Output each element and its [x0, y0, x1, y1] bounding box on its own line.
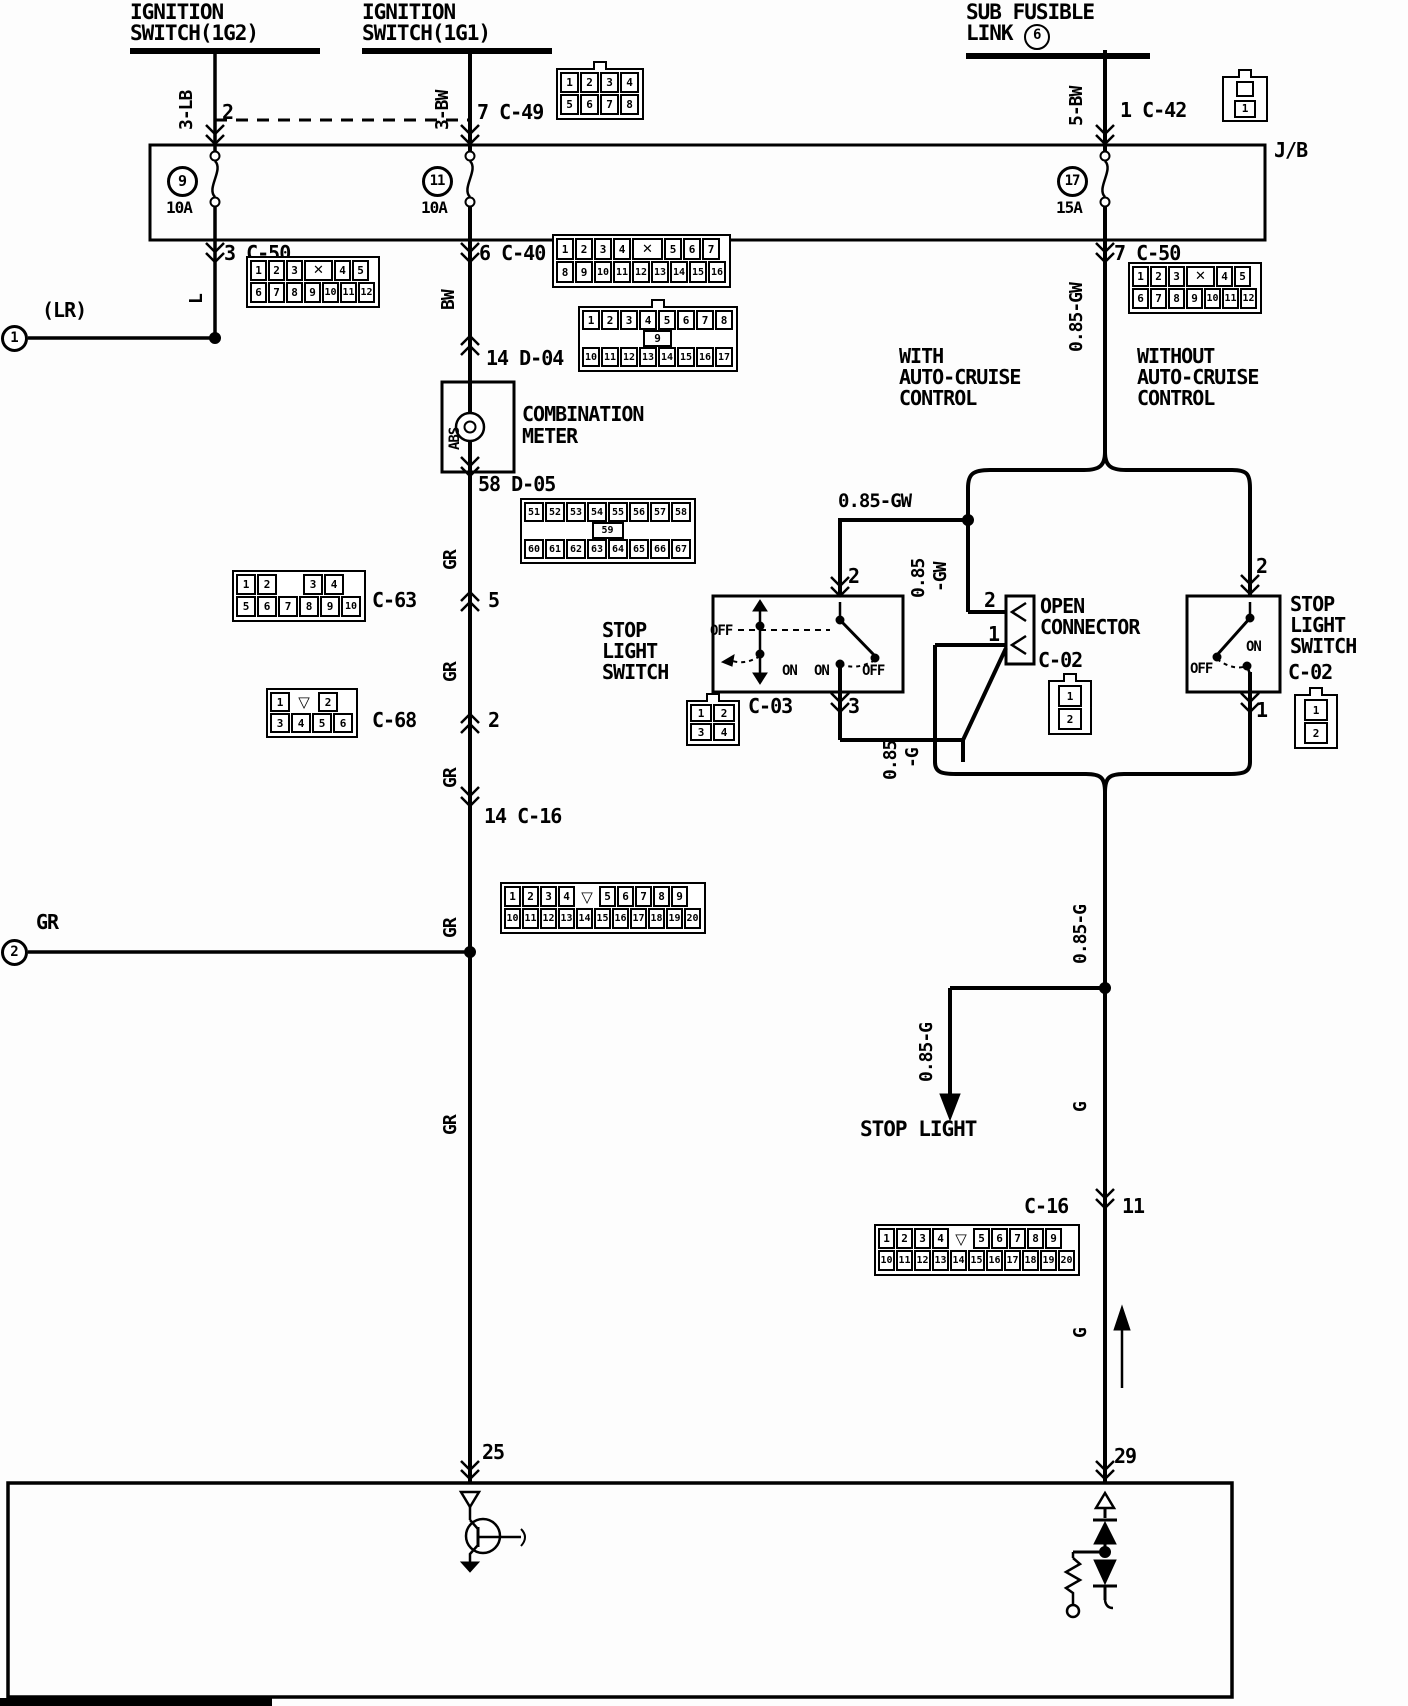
- connector-pin: 6: [683, 238, 701, 260]
- open-arrow-icon: [461, 1492, 479, 1507]
- label-15a: 15A: [1056, 200, 1082, 217]
- connector-pin: 2: [257, 574, 277, 595]
- connector-pin: 4: [639, 310, 657, 330]
- connector-pin: 11: [601, 347, 619, 367]
- connector-pin: 9: [1186, 288, 1203, 309]
- header-line: SUB FUSIBLE: [966, 2, 1150, 23]
- fuse-element: [212, 161, 217, 197]
- connector-pin: 4: [613, 238, 631, 260]
- connector-row: 1234: [560, 72, 640, 94]
- connector-pin: 59: [592, 522, 624, 539]
- circled-ref-1: 1: [1, 325, 28, 352]
- connector-pin: 16: [696, 347, 714, 367]
- connector-pin: 3: [286, 260, 303, 281]
- connector-pin: 3: [540, 886, 557, 907]
- label-auto-cruise: AUTO-CRUISE: [899, 367, 1020, 388]
- female-pin-icon: [1012, 603, 1026, 621]
- abs-lamp-inner: [465, 422, 476, 433]
- connector-row: 6789101112: [250, 282, 376, 304]
- connector-pin: 10: [582, 347, 600, 367]
- label-10a: 10A: [166, 200, 192, 217]
- connector-row: 8910111213141516: [556, 261, 727, 284]
- label-with: WITH: [899, 346, 943, 367]
- connector-pin: 5: [1234, 266, 1251, 287]
- connector-pin: 1: [556, 238, 574, 260]
- junction-dot: [210, 333, 221, 344]
- connector-pin: 6: [1132, 288, 1149, 309]
- connector-pin: 13: [639, 347, 657, 367]
- connector-pin: 51: [524, 502, 544, 522]
- label-g: G: [1072, 1328, 1091, 1338]
- connector-pin: 2: [580, 72, 599, 93]
- connector-pin: 10: [341, 596, 361, 617]
- header-line: SWITCH(1G2): [130, 23, 320, 44]
- fuse-terminal: [211, 198, 220, 207]
- switch-blade: [840, 620, 875, 656]
- connector-pin: 53: [566, 502, 586, 522]
- connector-row: 1▽2: [270, 692, 354, 713]
- label-gr: GR: [442, 1115, 461, 1135]
- connector-pin: 7: [268, 282, 285, 303]
- connector-pin: 6: [250, 282, 267, 303]
- connector-pin: 66: [650, 539, 670, 559]
- connector-pin: 12: [620, 347, 638, 367]
- label-gw: -GW: [932, 562, 951, 592]
- connector-pin: 7: [278, 596, 298, 617]
- wire: [963, 648, 1006, 740]
- connector-icon-c-42: 1: [1222, 76, 1268, 122]
- connector-nub: [651, 299, 665, 308]
- connector-pin: 13: [932, 1250, 949, 1271]
- label-off: OFF: [710, 624, 732, 639]
- connector-row: 1234▽56789: [878, 1228, 1076, 1250]
- open-arrow-icon: [1096, 1493, 1114, 1508]
- label-2: 2: [848, 566, 859, 587]
- keying-notch-icon: ▽: [291, 692, 317, 712]
- connector-pin: 18: [648, 908, 665, 929]
- contact-dot: [836, 660, 844, 668]
- label-gr: GR: [36, 912, 58, 933]
- connector-pin: 11: [896, 1250, 913, 1271]
- connector-pin: 14: [950, 1250, 967, 1271]
- connector-pin: 5: [658, 310, 676, 330]
- connector-pin: 14: [658, 347, 676, 367]
- wiring-diagram: IGNITIONSWITCH(1G2)IGNITIONSWITCH(1G1)SU…: [0, 0, 1408, 1706]
- fuse-terminal: [466, 198, 475, 207]
- connector-pin: 9: [643, 330, 672, 347]
- fuse-terminal: [1101, 152, 1110, 161]
- connector-pin: 8: [556, 261, 574, 283]
- connector-pin: 2: [318, 692, 338, 712]
- header-line: IGNITION: [130, 2, 320, 23]
- connector-pin: 9: [575, 261, 593, 283]
- label-14-c-16: 14 C-16: [484, 806, 561, 827]
- connector-pin: 52: [545, 502, 565, 522]
- connector-pin: 6: [677, 310, 695, 330]
- connector-pin: 2: [601, 310, 619, 330]
- label-1: 1: [988, 624, 999, 645]
- connector-pin: 7: [1150, 288, 1167, 309]
- wire: [1105, 762, 1250, 792]
- connector-pin: 11: [522, 908, 539, 929]
- connector-pin: 7: [635, 886, 652, 907]
- label-light: LIGHT: [602, 641, 657, 662]
- connector-row: 6061626364656667: [524, 539, 692, 560]
- label-open: OPEN: [1040, 596, 1084, 617]
- connector-row: 1234: [236, 574, 362, 596]
- connector-pin: 15: [594, 908, 611, 929]
- header-line: LINK 6: [966, 23, 1150, 50]
- label-c-03: C-03: [748, 696, 792, 717]
- connector-nub: [1238, 69, 1252, 78]
- connector-pin: 17: [1004, 1250, 1021, 1271]
- connector-pin: 1: [250, 260, 267, 281]
- connector-pin: 13: [558, 908, 575, 929]
- label-2: 2: [984, 590, 995, 611]
- junction-dot: [465, 947, 476, 958]
- connector-pin: 6: [580, 94, 599, 115]
- connector-pin: 4: [334, 260, 351, 281]
- connector-pin: 7: [1009, 1228, 1026, 1249]
- connector-pin: 20: [684, 908, 701, 929]
- label-auto-cruise: AUTO-CRUISE: [1137, 367, 1258, 388]
- connector-row: 1234▽56789: [504, 886, 702, 908]
- connector-pin: 6: [257, 596, 277, 617]
- label-1-c-42: 1 C-42: [1120, 100, 1186, 121]
- connector-pin: 8: [299, 596, 319, 617]
- connector-pin: 4: [620, 72, 639, 93]
- connector-pin: 8: [653, 886, 670, 907]
- connector-pin: 5: [560, 94, 579, 115]
- connector-pin: 3: [270, 713, 290, 733]
- connector-pin: 8: [715, 310, 733, 330]
- connector-pin: 58: [671, 502, 691, 522]
- header-line: IGNITION: [362, 2, 552, 23]
- connector-pin: 3: [620, 310, 638, 330]
- connector-pin: 5: [599, 886, 616, 907]
- connector-pin: 19: [1040, 1250, 1057, 1271]
- label-lr: (LR): [42, 300, 86, 321]
- connector-pin: 5: [973, 1228, 990, 1249]
- connector-row: 1011121314151617: [582, 347, 734, 368]
- connector-pin: 1: [1132, 266, 1149, 287]
- connector-pin: 3: [600, 72, 619, 93]
- connector-pin: 2: [713, 704, 735, 722]
- connector-pin: 11: [340, 282, 357, 303]
- connector-pin: 11: [1222, 288, 1239, 309]
- diode-up-icon: [1094, 1522, 1116, 1544]
- connector-nub: [1063, 673, 1077, 682]
- fuse-terminal: [466, 152, 475, 161]
- label-l: L: [188, 294, 207, 304]
- connector-row: 1011121314151617181920: [878, 1250, 1076, 1272]
- ground-icon: [461, 1562, 479, 1572]
- label-abs: ABS: [448, 428, 463, 450]
- connector-pin: 5: [664, 238, 682, 260]
- connector-icon-d-04: 1234567891011121314151617: [578, 306, 738, 372]
- connector-row: 123✕45: [1132, 266, 1258, 288]
- connector-pin: 67: [671, 539, 691, 559]
- connector-pin: 3: [1168, 266, 1185, 287]
- fuse-element: [1102, 161, 1107, 197]
- fuse-terminal: [1101, 198, 1110, 207]
- connector-pin: 12: [632, 261, 650, 283]
- connector-icon-c-68: 1▽23456: [266, 688, 358, 738]
- keying-notch-icon: ▽: [576, 886, 598, 907]
- connector-pin: 15: [689, 261, 707, 283]
- connector-pin: 15: [968, 1250, 985, 1271]
- wire: [968, 452, 1105, 488]
- wire: [521, 1529, 525, 1546]
- connector-pin: 2: [575, 238, 593, 260]
- label-on: ON: [1246, 640, 1261, 655]
- label-gr: GR: [442, 918, 461, 938]
- keying-notch-icon: ▽: [950, 1228, 972, 1249]
- connector-pin: 7: [600, 94, 619, 115]
- label-off: OFF: [862, 664, 884, 679]
- connector-pin: 10: [322, 282, 339, 303]
- connector-pin: 1: [560, 72, 579, 93]
- connector-pin: 2: [1150, 266, 1167, 287]
- contact-dot: [756, 622, 764, 630]
- label-gr: GR: [442, 768, 461, 788]
- connector-gap: [278, 574, 302, 595]
- arrow-up-icon: [753, 600, 767, 611]
- diode-down-icon: [1094, 1560, 1116, 1584]
- connector-pin: 60: [524, 539, 544, 559]
- connector-nub: [706, 693, 720, 702]
- connector-pin: 9: [320, 596, 340, 617]
- label-c-68: C-68: [372, 710, 416, 731]
- label-2: 2: [1256, 556, 1267, 577]
- connector-pin: 8: [1027, 1228, 1044, 1249]
- connector-pin: 4: [558, 886, 575, 907]
- connector-icon-c-50: 123✕456789101112: [1128, 262, 1262, 314]
- label-meter: METER: [522, 426, 577, 447]
- connector-pin: 10: [594, 261, 612, 283]
- connector-pin: 4: [713, 723, 735, 741]
- connector-row: 59: [524, 522, 692, 540]
- label-stop-light: STOP LIGHT: [860, 1118, 976, 1140]
- connector-pin: 19: [666, 908, 683, 929]
- connector-pin: 4: [291, 713, 311, 733]
- connector-pin: 16: [986, 1250, 1003, 1271]
- junction-dot: [963, 515, 974, 526]
- label-14-d-04: 14 D-04: [486, 348, 563, 369]
- connector-pin: 10: [878, 1250, 895, 1271]
- label-c-02: C-02: [1038, 650, 1082, 671]
- label-on: ON: [814, 664, 829, 679]
- connector-row: 3456: [270, 713, 354, 734]
- connector-pin: 20: [1058, 1250, 1075, 1271]
- label-3: 3: [848, 696, 859, 717]
- connector-row: 6789101112: [1132, 288, 1258, 310]
- connector-row: 5678: [560, 94, 640, 116]
- label-0-85-gw: 0.85-GW: [838, 492, 911, 512]
- connector-icon-c-16: 1234▽567891011121314151617181920: [874, 1224, 1080, 1276]
- connector-pin: 3: [594, 238, 612, 260]
- connector-pin: 10: [1204, 288, 1221, 309]
- connector-pin: 65: [629, 539, 649, 559]
- connector-pin: 14: [576, 908, 593, 929]
- connector-pin: 5: [236, 596, 256, 617]
- label-c-63: C-63: [372, 590, 416, 611]
- circled-ref-17: 17: [1057, 166, 1088, 197]
- label-10a: 10A: [421, 200, 447, 217]
- connector-pin: 1: [690, 704, 712, 722]
- label-connector: CONNECTOR: [1040, 617, 1139, 638]
- connector-row: 34: [690, 723, 736, 742]
- keying-x-icon: ✕: [1186, 266, 1215, 287]
- female-pin-icon: [1012, 636, 1026, 654]
- label-0-85-gw: 0.85-GW: [1068, 283, 1087, 352]
- stop-light-unit-box: [8, 1483, 1232, 1697]
- label-6-c-40: 6 C-40: [479, 243, 545, 264]
- label-1: 1: [1256, 700, 1267, 721]
- connector-row: 1011121314151617181920: [504, 908, 702, 930]
- connector-pin: 64: [608, 539, 628, 559]
- connector-pin: 17: [715, 347, 733, 367]
- connector-pin: 6: [333, 713, 353, 733]
- label-combination: COMBINATION: [522, 404, 643, 425]
- connector-pin: 7: [696, 310, 714, 330]
- connector-nub: [1309, 687, 1323, 696]
- connector-pin: 1: [1058, 685, 1082, 707]
- connector-pin: 1: [504, 886, 521, 907]
- connector-row: 12345678: [582, 310, 734, 331]
- label-0-85-g: 0.85-G: [1072, 905, 1091, 964]
- connector-pin: 10: [504, 908, 521, 929]
- connector-row: 12: [690, 704, 736, 723]
- connector-pin: 13: [651, 261, 669, 283]
- connector-pin: 12: [914, 1250, 931, 1271]
- circled-ref-2: 2: [1, 939, 28, 966]
- connector-pin: 3: [690, 723, 712, 741]
- connector-pin: 1: [1304, 699, 1328, 721]
- connector-pin: 16: [612, 908, 629, 929]
- connector-pin: 14: [670, 261, 688, 283]
- label-stop: STOP: [602, 620, 646, 641]
- scan-artifact: [0, 1698, 272, 1706]
- label-switch: SWITCH: [602, 662, 668, 683]
- connector-pin: 61: [545, 539, 565, 559]
- connector-pin: 4: [324, 574, 344, 595]
- connector-pin: 3: [914, 1228, 931, 1249]
- label-11: 11: [1122, 1196, 1144, 1217]
- connector-icon-c-02: 12: [1048, 680, 1092, 735]
- label-on: ON: [782, 664, 797, 679]
- label-0-85-g: 0.85-G: [918, 1023, 937, 1082]
- connector-pin: 16: [708, 261, 726, 283]
- wire: [935, 762, 1105, 792]
- junction-block-box: [150, 145, 1265, 240]
- connector-pin: 6: [617, 886, 634, 907]
- connector-pin: 2: [896, 1228, 913, 1249]
- label-7-c-50: 7 C-50: [1114, 243, 1180, 264]
- label-3-bw: 3-BW: [434, 91, 453, 130]
- connector-icon-d-05: 5152535455565758596061626364656667: [520, 498, 696, 564]
- stop-light-switch-c02-box: [1187, 596, 1280, 692]
- connector-pin: 5: [352, 260, 369, 281]
- junction-dot: [1100, 983, 1111, 994]
- header-ignition-switch-1g2: IGNITIONSWITCH(1G2): [130, 2, 320, 54]
- circled-ref-11: 11: [422, 166, 453, 197]
- connector-pin: 9: [304, 282, 321, 303]
- connector-pin: 56: [629, 502, 649, 522]
- label-control: CONTROL: [899, 388, 976, 409]
- connector-nub: [593, 61, 607, 70]
- connector-row: 9: [582, 330, 734, 348]
- label-29: 29: [1114, 1446, 1136, 1467]
- arrow-up-icon: [1114, 1306, 1130, 1330]
- resistor-icon: [1066, 1558, 1080, 1604]
- connector-pin: 12: [358, 282, 375, 303]
- connector-icon-c-49: 12345678: [556, 68, 644, 120]
- connector-pin: 1: [270, 692, 290, 712]
- connector-pin: 8: [620, 94, 639, 115]
- label-bw: BW: [440, 290, 459, 310]
- label-7-c-49: 7 C-49: [477, 102, 543, 123]
- connector-pin: 1: [1234, 100, 1256, 118]
- connector-pin: 7: [702, 238, 720, 260]
- keying-x-icon: ✕: [632, 238, 663, 260]
- switch-travel-dashed: [730, 656, 760, 662]
- label-3-lb: 3-LB: [178, 91, 197, 130]
- label-c-16: C-16: [1024, 1196, 1068, 1217]
- label-c-02: C-02: [1288, 662, 1332, 683]
- connector-pin: 63: [587, 539, 607, 559]
- terminal-circle: [1067, 1605, 1079, 1617]
- wire: [1105, 452, 1250, 488]
- connector-pin: 5: [312, 713, 332, 733]
- connector-pin: 6: [991, 1228, 1008, 1249]
- label-off: OFF: [1190, 662, 1212, 677]
- label-0-85: 0.85: [910, 559, 929, 598]
- connector-pin: 8: [1168, 288, 1185, 309]
- arrow-icon: [722, 655, 734, 666]
- connector-pin: 2: [522, 886, 539, 907]
- label-g: -G: [904, 748, 923, 768]
- connector-icon-c-40: 1234✕5678910111213141516: [552, 234, 731, 288]
- fuse-terminal: [211, 152, 220, 161]
- circled-number-icon: 6: [1024, 24, 1050, 50]
- keying-x-icon: ✕: [304, 260, 333, 281]
- connector-body: [1236, 81, 1254, 97]
- label-light: LIGHT: [1290, 615, 1345, 636]
- header-sub-fusible-link: SUB FUSIBLELINK 6: [966, 2, 1150, 59]
- fuse-element: [467, 161, 472, 197]
- switch-travel-dashed: [1217, 659, 1247, 667]
- connector-pin: 4: [932, 1228, 949, 1249]
- label-5-bw: 5-BW: [1068, 87, 1087, 126]
- connector-pin: 2: [1304, 722, 1328, 744]
- connector-pin: 1: [236, 574, 256, 595]
- connector-pin: 1: [878, 1228, 895, 1249]
- connector-pin: 2: [268, 260, 285, 281]
- label-switch: SWITCH: [1290, 636, 1356, 657]
- connector-icon-c-63: 12345678910: [232, 570, 366, 622]
- connector-row: 5152535455565758: [524, 502, 692, 523]
- label-58-d-05: 58 D-05: [478, 474, 555, 495]
- connector-pin: 9: [1045, 1228, 1062, 1249]
- circled-ref-9: 9: [167, 166, 198, 197]
- connector-pin: 11: [613, 261, 631, 283]
- label-j-b: J/B: [1274, 140, 1307, 161]
- connector-pin: 57: [650, 502, 670, 522]
- connector-pin: 4: [1216, 266, 1233, 287]
- label-gr: GR: [442, 550, 461, 570]
- connector-pin: 12: [1240, 288, 1257, 309]
